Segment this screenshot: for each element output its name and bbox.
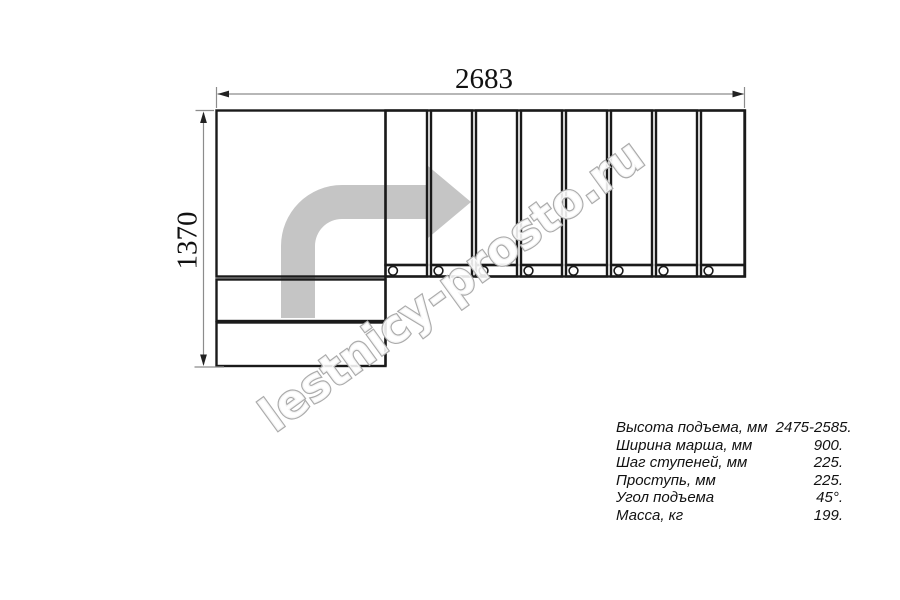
dimension-height-label: 1370 xyxy=(172,212,204,270)
spec-value: 225. xyxy=(814,472,843,490)
dim-arrow-left-icon xyxy=(218,91,230,98)
spec-row-angle: Угол подъема 45°. xyxy=(616,489,843,507)
dimension-width-label: 2683 xyxy=(455,63,513,95)
spec-value: 225. xyxy=(814,454,843,472)
dim-arrow-up-icon xyxy=(200,112,207,124)
spec-label: Шаг ступеней, мм xyxy=(616,454,747,472)
spec-row-step-pitch: Шаг ступеней, мм 225. xyxy=(616,454,843,472)
spec-label: Ширина марша, мм xyxy=(616,437,752,455)
spec-label: Масса, кг xyxy=(616,507,683,525)
dimension-width: 2683 xyxy=(217,63,745,108)
spec-label: Высота подъема, мм xyxy=(616,419,768,437)
fastener-circle-icon xyxy=(524,266,533,275)
spec-row-flight-width: Ширина марша, мм 900. xyxy=(616,437,843,455)
fastener-circle-icon xyxy=(389,266,398,275)
fastener-circle-icon xyxy=(569,266,578,275)
spec-label: Угол подъема xyxy=(616,489,714,507)
fastener-circle-icon xyxy=(614,266,623,275)
spec-value: 2475-2585. xyxy=(776,419,852,437)
specs-table: Высота подъема, мм 2475-2585. Ширина мар… xyxy=(616,419,843,525)
fastener-circle-icon xyxy=(659,266,668,275)
step-tread xyxy=(701,111,745,277)
spec-row-tread-depth: Проступь, мм 225. xyxy=(616,472,843,490)
spec-value: 199. xyxy=(814,507,843,525)
blueprint-canvas: 2683 1370 lestnicy-prosto.ru Высота подъ… xyxy=(0,0,900,600)
dim-arrow-down-icon xyxy=(200,355,207,367)
spec-value: 45°. xyxy=(816,489,843,507)
step-tread xyxy=(656,111,697,277)
spec-row-mass: Масса, кг 199. xyxy=(616,507,843,525)
dim-arrow-right-icon xyxy=(733,91,745,98)
fastener-circle-icon xyxy=(704,266,713,275)
spec-row-height: Высота подъема, мм 2475-2585. xyxy=(616,419,843,437)
spec-label: Проступь, мм xyxy=(616,472,716,490)
spec-value: 900. xyxy=(814,437,843,455)
